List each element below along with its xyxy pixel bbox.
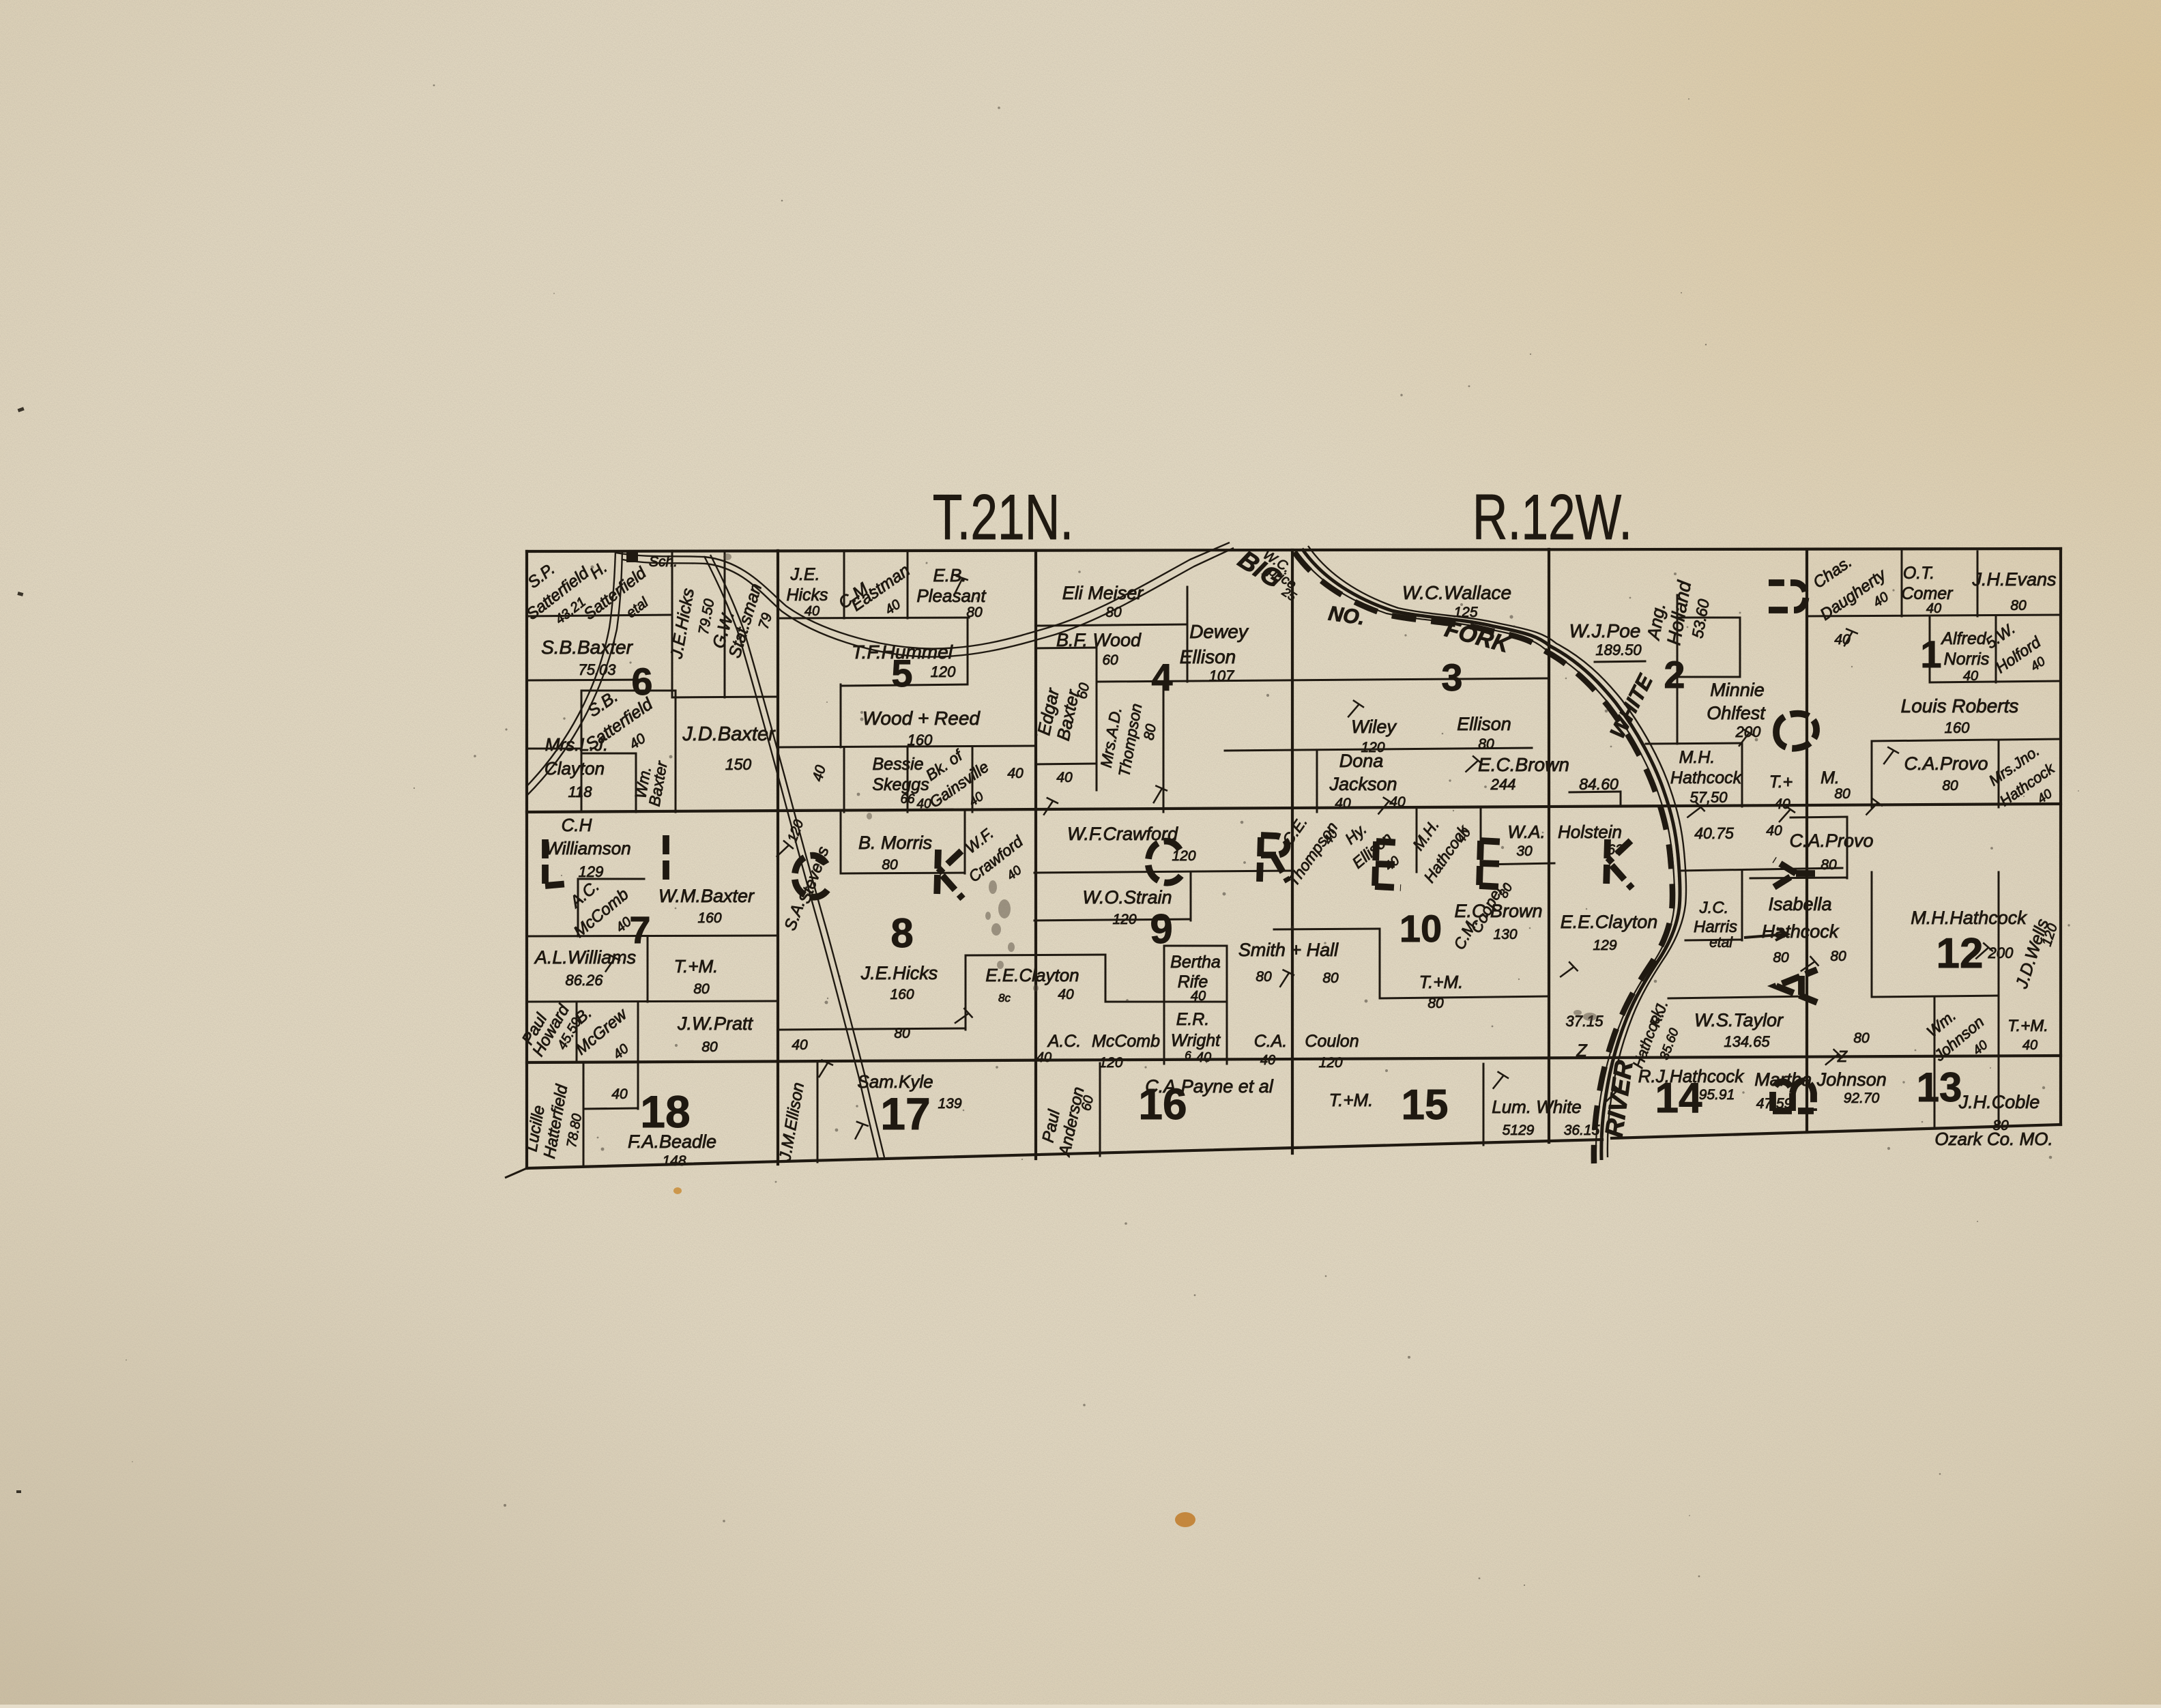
- svg-text:Clayton: Clayton: [545, 758, 605, 779]
- svg-text:200: 200: [1735, 723, 1761, 740]
- svg-text:80: 80: [966, 605, 983, 620]
- svg-text:J.C.: J.C.: [1699, 899, 1729, 917]
- svg-text:80: 80: [1105, 605, 1122, 620]
- svg-text:E.R.: E.R.: [1176, 1010, 1210, 1029]
- svg-text:C.A.Payne et al: C.A.Payne et al: [1145, 1076, 1274, 1097]
- svg-text:9: 9: [1150, 906, 1172, 952]
- svg-text:148: 148: [662, 1153, 686, 1169]
- svg-text:Alfred: Alfred: [1940, 629, 1986, 648]
- svg-text:40: 40: [611, 1086, 628, 1102]
- svg-text:T.21N.: T.21N.: [933, 480, 1073, 553]
- svg-text:15: 15: [1402, 1082, 1449, 1129]
- svg-text:E.B.: E.B.: [933, 565, 966, 585]
- svg-text:Eli Meiser: Eli Meiser: [1062, 583, 1144, 603]
- svg-text:40: 40: [1036, 1050, 1052, 1065]
- svg-text:J.D.Baxter: J.D.Baxter: [682, 723, 776, 745]
- svg-text:W.C.Wallace: W.C.Wallace: [1402, 582, 1511, 603]
- svg-text:57,50: 57,50: [1689, 789, 1728, 806]
- svg-text:120: 120: [931, 663, 956, 680]
- svg-text:60: 60: [1102, 652, 1118, 668]
- svg-text:W.S.Taylor: W.S.Taylor: [1694, 1010, 1784, 1030]
- svg-text:139: 139: [938, 1096, 961, 1112]
- svg-text:200: 200: [1988, 944, 2014, 961]
- svg-text:Smith + Hall: Smith + Hall: [1238, 940, 1339, 960]
- svg-text:M.: M.: [1821, 768, 1840, 787]
- svg-text:80: 80: [1834, 786, 1851, 802]
- svg-text:40: 40: [1834, 632, 1851, 648]
- svg-text:36.15: 36.15: [1564, 1123, 1600, 1138]
- svg-text:80: 80: [1773, 950, 1789, 966]
- svg-text:134.65: 134.65: [1724, 1033, 1770, 1050]
- svg-text:Sam.Kyle: Sam.Kyle: [857, 1071, 933, 1092]
- svg-text:86.26: 86.26: [565, 972, 603, 989]
- svg-text:W.M.Baxter: W.M.Baxter: [658, 886, 755, 906]
- svg-text:Bertha: Bertha: [1170, 953, 1221, 972]
- svg-text:40: 40: [792, 1037, 808, 1053]
- svg-text:M.H.Hathcock: M.H.Hathcock: [1911, 908, 2027, 928]
- svg-text:40: 40: [2022, 1038, 2037, 1053]
- svg-text:Hathcock: Hathcock: [1762, 921, 1840, 942]
- svg-text:Sch.: Sch.: [649, 554, 678, 570]
- svg-text:10: 10: [1399, 907, 1442, 950]
- svg-text:18: 18: [640, 1086, 690, 1137]
- svg-text:8c: 8c: [998, 991, 1011, 1004]
- svg-text:63: 63: [1607, 842, 1623, 858]
- svg-text:13: 13: [1917, 1065, 1962, 1110]
- svg-text:J.E.Hicks: J.E.Hicks: [860, 963, 938, 983]
- svg-text:Wood + Reed: Wood + Reed: [862, 708, 981, 729]
- svg-text:E.C.Brown: E.C.Brown: [1478, 754, 1569, 775]
- svg-text:Louis Roberts: Louis Roberts: [1901, 695, 2019, 717]
- svg-text:130: 130: [1493, 927, 1517, 942]
- svg-text:40: 40: [1389, 794, 1406, 810]
- svg-text:F.A.Beadle: F.A.Beadle: [628, 1131, 716, 1152]
- svg-text:40: 40: [804, 604, 820, 619]
- svg-text:T.+: T.+: [1769, 772, 1793, 792]
- svg-text:80: 80: [1427, 996, 1444, 1011]
- svg-text:T.+M.: T.+M.: [1419, 972, 1464, 992]
- svg-text:8: 8: [890, 910, 913, 956]
- svg-text:80: 80: [1141, 723, 1159, 741]
- svg-text:80: 80: [1942, 778, 1958, 794]
- svg-text:75.03: 75.03: [578, 661, 616, 678]
- svg-text:Lum. White: Lum. White: [1492, 1097, 1582, 1117]
- svg-text:B.F. Wood: B.F. Wood: [1056, 630, 1142, 650]
- svg-text:Isabella: Isabella: [1768, 894, 1831, 914]
- svg-text:244: 244: [1490, 776, 1516, 793]
- svg-text:Comer: Comer: [1901, 584, 1954, 603]
- svg-text:Hicks: Hicks: [786, 585, 828, 605]
- svg-text:30: 30: [1516, 843, 1533, 859]
- svg-text:T.F.Hummel: T.F.Hummel: [852, 641, 953, 663]
- svg-text:E.C.Brown: E.C.Brown: [1454, 901, 1542, 921]
- svg-text:6: 6: [1185, 1049, 1191, 1062]
- svg-text:Hathcock: Hathcock: [1670, 768, 1743, 787]
- svg-text:80: 80: [1853, 1030, 1870, 1046]
- svg-text:J.H.Evans: J.H.Evans: [1971, 569, 2056, 590]
- svg-text:Jackson: Jackson: [1329, 774, 1397, 794]
- svg-text:80: 80: [882, 857, 898, 873]
- svg-text:80: 80: [1256, 969, 1272, 985]
- svg-text:40.75: 40.75: [1694, 824, 1734, 842]
- svg-text:3: 3: [1441, 656, 1462, 699]
- svg-text:J.H.Coble: J.H.Coble: [1958, 1092, 2040, 1112]
- svg-text:W.J.Poe: W.J.Poe: [1569, 620, 1641, 641]
- svg-text:80: 80: [693, 981, 710, 997]
- svg-text:C.A.: C.A.: [1254, 1032, 1288, 1051]
- svg-text:E.E.Clayton: E.E.Clayton: [1561, 912, 1658, 932]
- svg-text:47.59: 47.59: [1756, 1096, 1793, 1112]
- svg-text:Z: Z: [1837, 1047, 1848, 1065]
- svg-text:C.A.Provo: C.A.Provo: [1904, 753, 1988, 774]
- svg-text:R.J.Hathcock: R.J.Hathcock: [1638, 1066, 1745, 1086]
- svg-text:W.F.Crawford: W.F.Crawford: [1067, 824, 1178, 844]
- svg-text:C.A.Provo: C.A.Provo: [1789, 830, 1873, 851]
- svg-text:M.H.: M.H.: [1679, 748, 1715, 767]
- svg-text:4: 4: [1151, 656, 1172, 699]
- svg-text:T.+M.: T.+M.: [674, 956, 719, 976]
- svg-text:Holstein: Holstein: [1558, 822, 1622, 842]
- svg-text:160: 160: [890, 987, 914, 1002]
- svg-text:Wright: Wright: [1171, 1031, 1221, 1050]
- svg-text:Minnie: Minnie: [1710, 680, 1765, 700]
- svg-text:120: 120: [1099, 1055, 1122, 1071]
- svg-text:92.70: 92.70: [1844, 1090, 1880, 1106]
- svg-text:O.T.: O.T.: [1903, 564, 1934, 583]
- svg-text:Wiley: Wiley: [1351, 717, 1397, 737]
- svg-text:80: 80: [1830, 949, 1846, 964]
- svg-text:107: 107: [1209, 667, 1234, 684]
- svg-text:12: 12: [1937, 930, 1984, 977]
- svg-text:84.60: 84.60: [1579, 775, 1619, 793]
- svg-text:7: 7: [629, 908, 650, 951]
- svg-text:120: 120: [1318, 1055, 1342, 1071]
- svg-text:160: 160: [908, 732, 933, 749]
- svg-text:A.L.Williams: A.L.Williams: [534, 947, 636, 968]
- svg-text:Norris: Norris: [1944, 650, 1990, 669]
- svg-text:66: 66: [900, 792, 915, 807]
- svg-text:95.91: 95.91: [1699, 1087, 1735, 1103]
- svg-text:W.A.: W.A.: [1507, 822, 1545, 842]
- svg-text:40: 40: [1926, 601, 1941, 616]
- svg-text:S.B.Baxter: S.B.Baxter: [541, 637, 634, 658]
- svg-text:40: 40: [1335, 796, 1351, 811]
- svg-text:40: 40: [1963, 669, 1978, 684]
- svg-text:J.E.: J.E.: [789, 565, 820, 584]
- svg-text:B. Morris: B. Morris: [858, 833, 932, 853]
- svg-text:5129: 5129: [1503, 1123, 1535, 1138]
- svg-text:160: 160: [1945, 719, 1970, 736]
- svg-text:40: 40: [1191, 989, 1206, 1004]
- svg-text:1: 1: [1920, 633, 1941, 676]
- svg-text:40: 40: [1196, 1050, 1211, 1065]
- svg-text:Ohlfest: Ohlfest: [1707, 703, 1766, 723]
- svg-text:C.H: C.H: [562, 815, 592, 835]
- svg-text:120: 120: [1172, 848, 1195, 864]
- svg-text:Williamson: Williamson: [545, 838, 630, 858]
- svg-text:129: 129: [1593, 938, 1616, 953]
- svg-text:40: 40: [1007, 766, 1024, 781]
- svg-text:80: 80: [894, 1026, 910, 1041]
- svg-text:Ellison: Ellison: [1180, 646, 1236, 667]
- svg-text:40: 40: [1774, 796, 1790, 812]
- svg-text:80: 80: [2010, 598, 2027, 613]
- svg-text:Harris: Harris: [1694, 918, 1737, 936]
- svg-text:T.+M.: T.+M.: [1329, 1090, 1374, 1110]
- svg-text:J.W.Pratt: J.W.Pratt: [677, 1013, 754, 1034]
- svg-text:40: 40: [1766, 823, 1782, 839]
- svg-text:A.C.: A.C.: [1047, 1032, 1082, 1051]
- svg-text:150: 150: [725, 755, 752, 773]
- svg-text:R.12W.: R.12W.: [1473, 480, 1632, 553]
- svg-text:189.50: 189.50: [1595, 641, 1642, 658]
- svg-text:118: 118: [568, 783, 592, 800]
- svg-text:60: 60: [1079, 1095, 1097, 1112]
- svg-text:80: 80: [1478, 736, 1494, 752]
- svg-text:40: 40: [1056, 770, 1073, 785]
- svg-text:80: 80: [1322, 970, 1339, 986]
- svg-text:80: 80: [701, 1039, 718, 1055]
- svg-text:Dewey: Dewey: [1189, 621, 1249, 642]
- svg-text:etal: etal: [1709, 935, 1733, 951]
- svg-text:Z: Z: [1576, 1041, 1587, 1060]
- svg-text:120: 120: [1112, 912, 1136, 927]
- svg-text:17: 17: [880, 1088, 930, 1139]
- svg-text:80: 80: [1821, 857, 1837, 873]
- svg-text:160: 160: [697, 910, 721, 926]
- svg-text:40: 40: [1260, 1053, 1275, 1068]
- svg-text:Ellison: Ellison: [1457, 714, 1511, 734]
- svg-text:McComb: McComb: [1092, 1032, 1160, 1051]
- svg-text:Bessie: Bessie: [872, 755, 923, 774]
- svg-text:40: 40: [1058, 987, 1074, 1002]
- svg-text:Dona: Dona: [1339, 751, 1384, 771]
- svg-text:Coulon: Coulon: [1305, 1032, 1359, 1051]
- svg-text:W.O.Strain: W.O.Strain: [1082, 887, 1172, 908]
- svg-text:Martha Johnson: Martha Johnson: [1754, 1069, 1887, 1090]
- svg-text:Ozark Co. MO.: Ozark Co. MO.: [1934, 1129, 2053, 1149]
- svg-text:T.+M.: T.+M.: [2007, 1017, 2048, 1035]
- svg-text:Mrs.L.J.: Mrs.L.J.: [545, 734, 608, 755]
- svg-text:Skeggs: Skeggs: [872, 775, 929, 794]
- svg-text:2: 2: [1664, 653, 1685, 696]
- svg-text:Pleasant: Pleasant: [916, 585, 987, 606]
